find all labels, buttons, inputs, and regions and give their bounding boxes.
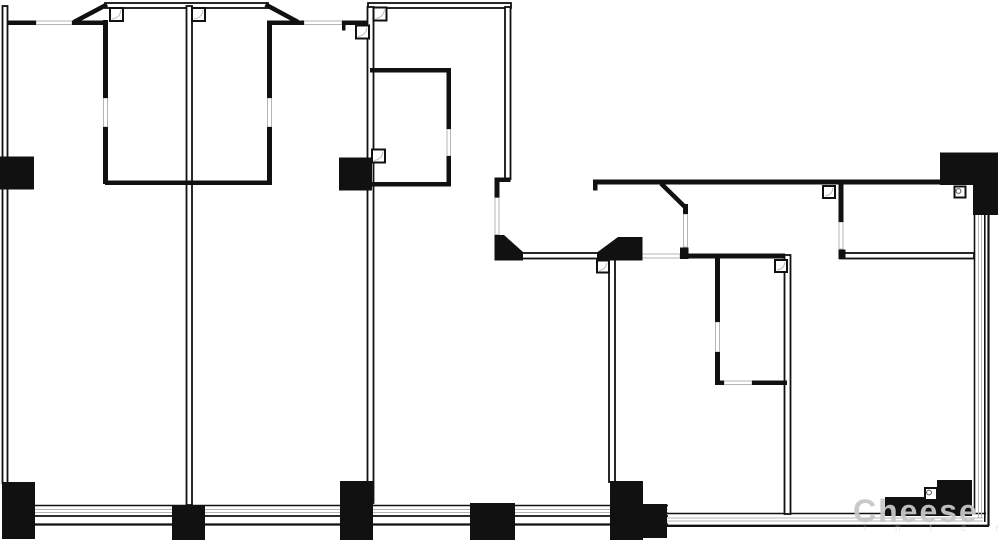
wall-solid <box>715 381 724 386</box>
wall-hollow <box>187 6 193 505</box>
wall-solid <box>715 352 720 385</box>
column <box>172 505 205 540</box>
wall-diagonal <box>266 5 299 23</box>
door-swing-square <box>372 150 385 163</box>
wall-hollow <box>3 6 8 483</box>
door-opening <box>716 322 720 352</box>
door-swing-square <box>192 8 205 21</box>
wall-solid <box>447 68 452 129</box>
wall-hollow <box>609 259 615 482</box>
wall-solid <box>447 156 452 186</box>
wall-hollow <box>522 253 598 259</box>
door-opening <box>447 129 451 156</box>
column <box>2 482 35 539</box>
watermark: Cheese i n t e r <box>853 493 1000 534</box>
door-swing-square <box>356 26 369 39</box>
wall-solid <box>688 254 785 259</box>
column <box>973 153 998 216</box>
column-chamfered <box>495 235 524 261</box>
door-swing-square <box>823 186 835 198</box>
wall-solid <box>103 127 108 184</box>
wall-solid <box>495 178 500 198</box>
wall-solid <box>715 258 720 322</box>
door-opening <box>724 381 752 385</box>
door-opening <box>642 254 680 258</box>
wall-solid <box>267 22 272 98</box>
wall-solid <box>680 248 689 260</box>
riser-circle-icon <box>956 189 961 194</box>
column <box>0 157 34 190</box>
wall-hollow <box>840 253 974 259</box>
wall-solid <box>267 21 304 26</box>
watermark-subtext: i n t e r <box>864 523 1000 534</box>
column <box>940 153 973 186</box>
column <box>340 481 373 540</box>
wall-solid <box>342 21 346 31</box>
wall-solid <box>105 181 272 186</box>
wall-solid <box>370 68 451 73</box>
wall-hollow <box>505 7 511 179</box>
floor-plan-canvas: Cheese i n t e r <box>0 0 1000 541</box>
door-opening <box>304 21 342 25</box>
wall-diagonal <box>661 184 686 209</box>
wall-solid <box>267 127 272 185</box>
wall-solid <box>839 250 846 260</box>
wall-solid <box>370 182 451 187</box>
door-swing-square <box>775 260 787 272</box>
door-opening <box>684 214 688 247</box>
wall-diagonal <box>74 5 107 23</box>
door-opening <box>495 198 499 235</box>
floor-plan-page: Cheese i n t e r <box>0 0 1000 541</box>
wall-solid <box>752 381 787 386</box>
wall-solid <box>7 21 36 26</box>
door-opening <box>36 21 72 25</box>
wall-hollow <box>368 7 374 503</box>
column <box>470 503 515 540</box>
door-swing-square <box>110 8 123 21</box>
wall-hollow <box>368 3 511 8</box>
wall-solid <box>839 184 844 222</box>
column <box>643 504 667 538</box>
door-swing-square <box>374 8 387 21</box>
wall-solid <box>103 20 108 98</box>
door-opening <box>268 98 272 127</box>
column <box>339 158 372 191</box>
door-opening <box>839 222 843 249</box>
wall-solid <box>593 180 941 185</box>
wall-solid <box>342 21 368 26</box>
door-opening <box>104 98 108 127</box>
column <box>610 481 643 540</box>
wall-solid <box>593 180 598 191</box>
door-swing-square <box>597 261 609 273</box>
column-chamfered <box>597 237 643 261</box>
